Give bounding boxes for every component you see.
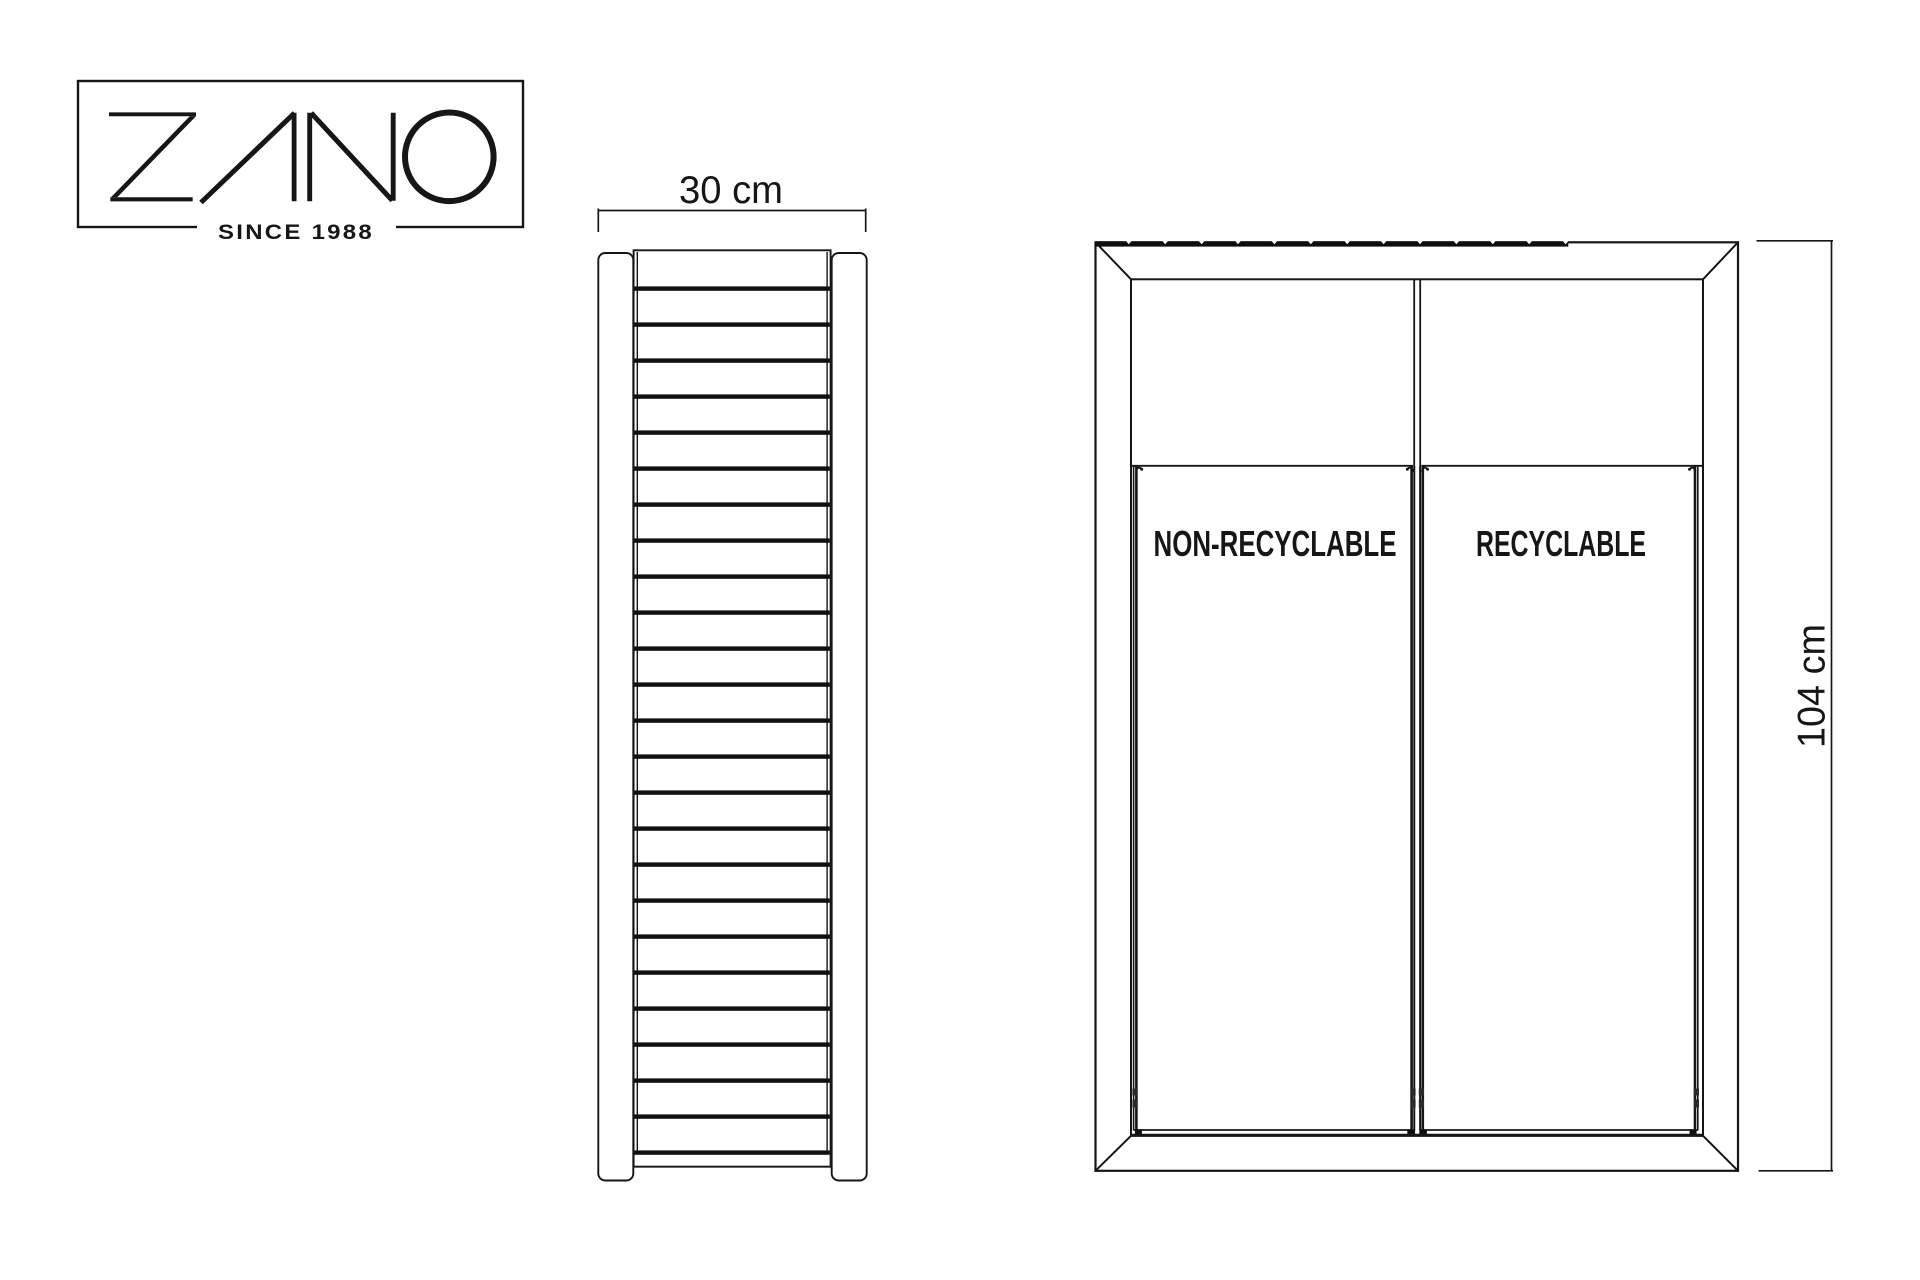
svg-text:RECYCLABLE: RECYCLABLE <box>1476 523 1646 564</box>
svg-text:NON-RECYCLABLE: NON-RECYCLABLE <box>1154 523 1397 564</box>
svg-text:30 cm: 30 cm <box>679 169 783 212</box>
svg-text:SINCE 1988: SINCE 1988 <box>218 221 374 244</box>
svg-text:104 cm: 104 cm <box>1791 624 1834 748</box>
